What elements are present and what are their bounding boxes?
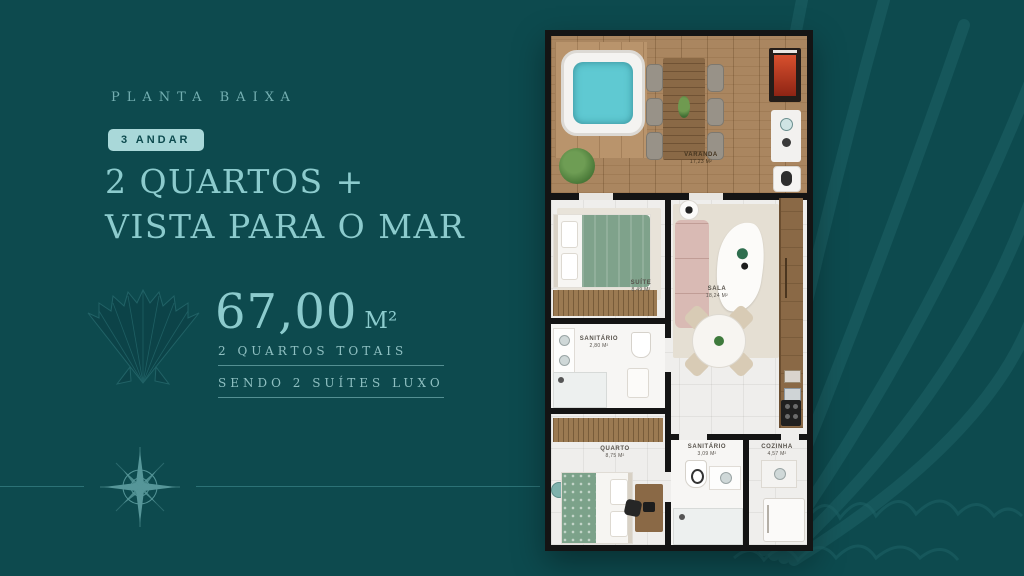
fridge — [763, 498, 805, 542]
wall — [551, 408, 671, 414]
area-unit: M² — [364, 308, 397, 334]
area-value: 67,00 — [215, 284, 357, 340]
basin — [774, 468, 786, 480]
room-area: 18,24 M² — [687, 293, 747, 299]
headline-line2: VISTA PARA O MAR — [105, 205, 465, 250]
area-figure: 67,00M² — [215, 284, 397, 340]
outdoor-sink — [771, 110, 801, 162]
shower-head — [679, 514, 685, 520]
headline: 2 QUARTOS + VISTA PARA O MAR — [105, 160, 465, 249]
bbq-fire — [774, 55, 796, 96]
room-label-varanda: VARANDA 17,23 M² — [661, 152, 741, 165]
basin — [559, 355, 570, 366]
desk-chair — [624, 499, 643, 518]
wall — [799, 434, 807, 440]
table-plant — [736, 247, 748, 259]
room-label-sanitario2: SANITÁRIO 3,09 M² — [677, 444, 737, 457]
sink-basin — [780, 118, 793, 131]
detail-lines: 2 QUARTOS TOTAIS SENDO 2 SUÍTES LUXO — [218, 344, 444, 408]
room-name: QUARTO — [585, 446, 645, 452]
floor-badge: 3 ANDAR — [108, 129, 204, 151]
room-label-cozinha: COZINHA 4,57 M² — [747, 444, 807, 457]
quarto-wardrobe — [553, 418, 663, 442]
kitchen-sink — [761, 460, 797, 488]
quarto-bed — [561, 472, 633, 544]
room-label-quarto: QUARTO 8,75 M² — [585, 446, 645, 459]
eyebrow-label: PLANTA BAIXA — [111, 90, 297, 105]
outdoor-chair — [646, 98, 663, 126]
side-table — [679, 200, 699, 220]
room-name: VARANDA — [661, 152, 741, 158]
headline-line1: 2 QUARTOS + — [105, 160, 465, 205]
room-label-sanitario1: SANITÁRIO 2,80 M² — [569, 336, 629, 349]
door-opening — [689, 193, 723, 200]
desk-item — [643, 502, 655, 512]
burner — [793, 414, 798, 419]
suite-bed — [553, 214, 651, 288]
microwave — [784, 370, 801, 383]
basin — [720, 472, 732, 484]
bed-blanket — [562, 473, 596, 543]
tv-panel-counter — [779, 198, 803, 428]
room-label-suite: SUÍTE 8,49 M² — [611, 280, 671, 293]
floor-plan: VARANDA 17,23 M² SUÍTE 8,49 M² — [545, 30, 813, 551]
compass-rose-icon — [98, 445, 182, 529]
outdoor-chair — [646, 64, 663, 92]
pillow — [610, 511, 628, 537]
jacuzzi — [561, 50, 645, 136]
outdoor-chair — [707, 98, 724, 126]
room-area: 17,23 M² — [661, 159, 741, 165]
detail-line2: SENDO 2 SUÍTES LUXO — [218, 376, 444, 398]
room-label-sala: SALA 18,24 M² — [687, 286, 747, 299]
wall — [665, 200, 671, 324]
outdoor-chair — [707, 64, 724, 92]
cooktop — [781, 400, 801, 426]
shower — [553, 372, 607, 408]
burner — [793, 404, 798, 409]
centerpiece-plant — [714, 336, 724, 346]
jacuzzi-water — [573, 62, 633, 124]
detail-line1: 2 QUARTOS TOTAIS — [218, 344, 444, 366]
room-area: 8,75 M² — [585, 453, 645, 459]
bed-blanket — [582, 215, 650, 287]
bbq-grill — [769, 48, 801, 102]
wall — [665, 324, 671, 338]
bath-sink — [709, 466, 741, 490]
headboard — [554, 215, 558, 287]
toilet — [685, 460, 707, 488]
room-name: SANITÁRIO — [569, 336, 629, 342]
door-opening — [579, 193, 613, 200]
pillow — [561, 253, 578, 280]
sink-drain — [782, 138, 791, 147]
room-area: 2,80 M² — [569, 343, 629, 349]
suite-wardrobe — [553, 290, 657, 316]
room-name: SUÍTE — [611, 280, 671, 286]
room-area: 3,09 M² — [677, 451, 737, 457]
rule-line-left — [0, 486, 84, 487]
shower-head — [558, 377, 564, 383]
room-area: 4,57 M² — [747, 451, 807, 457]
room-name: COZINHA — [747, 444, 807, 450]
potted-plant — [559, 148, 595, 184]
washtub-basin — [781, 171, 792, 186]
bath-stool — [627, 368, 649, 398]
shower — [673, 508, 743, 545]
toilet — [631, 332, 651, 358]
table-plant — [678, 96, 690, 118]
burner — [785, 404, 790, 409]
room-area: 8,49 M² — [611, 287, 671, 293]
room-name: SANITÁRIO — [677, 444, 737, 450]
rule-line-right — [196, 486, 540, 487]
burner — [785, 414, 790, 419]
cabinet-handle — [785, 258, 787, 298]
decor-bowl — [741, 262, 749, 270]
scallop-shell-icon — [86, 281, 206, 391]
fridge-handle — [767, 505, 769, 533]
room-name: SALA — [687, 286, 747, 292]
page: PLANTA BAIXA 3 ANDAR 2 QUARTOS + VISTA P… — [0, 0, 1024, 576]
pillow — [561, 221, 578, 248]
bbq-shelf — [773, 50, 797, 53]
washtub — [773, 166, 801, 192]
round-dining-table — [692, 314, 746, 368]
toilet-seat — [691, 469, 704, 484]
